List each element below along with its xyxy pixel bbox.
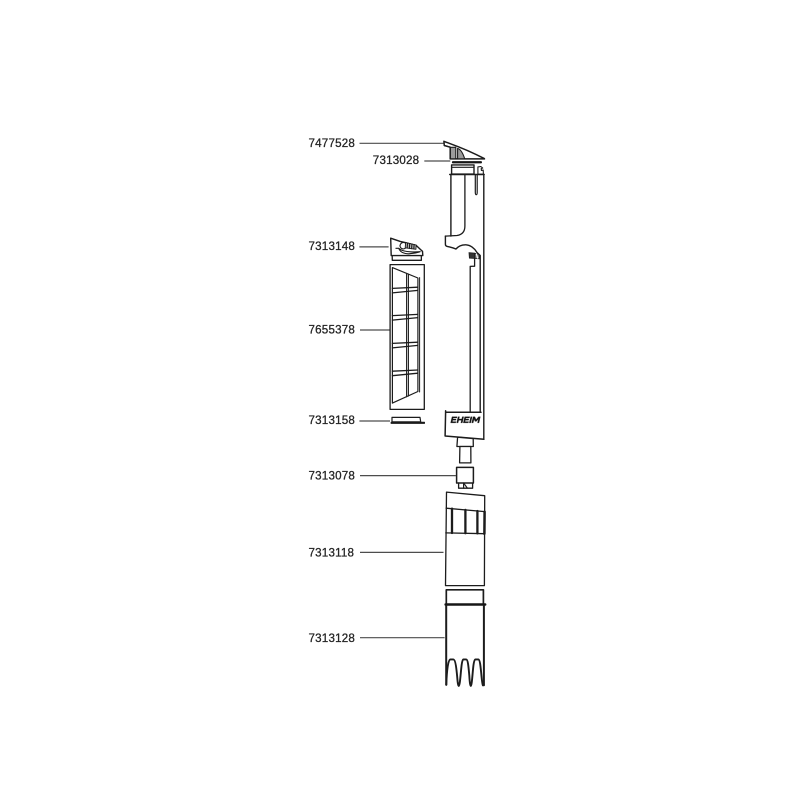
svg-text:7477528: 7477528 bbox=[309, 137, 356, 150]
svg-text:7313118: 7313118 bbox=[309, 547, 355, 560]
svg-text:7313128: 7313128 bbox=[309, 632, 356, 645]
svg-text:7313028: 7313028 bbox=[373, 154, 420, 167]
svg-text:7313078: 7313078 bbox=[309, 470, 356, 483]
svg-text:7655378: 7655378 bbox=[309, 324, 356, 337]
svg-text:7313158: 7313158 bbox=[309, 414, 356, 427]
svg-text:7313148: 7313148 bbox=[309, 240, 356, 253]
